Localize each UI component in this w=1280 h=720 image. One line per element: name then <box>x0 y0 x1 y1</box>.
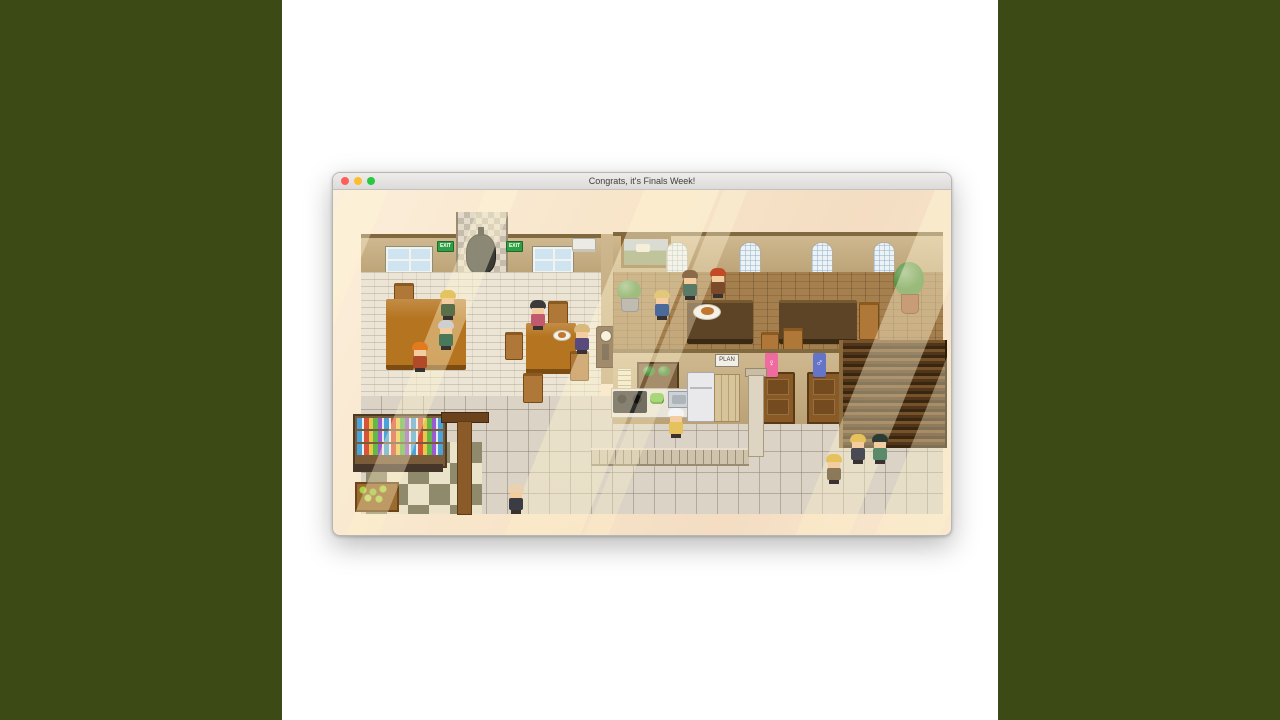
window-title: Congrats, it's Finals Week! <box>333 176 951 186</box>
window-titlebar[interactable]: Congrats, it's Finals Week! <box>333 173 951 190</box>
character-black-hair-girl <box>529 300 547 330</box>
character-elder-green <box>437 320 455 350</box>
video-frame: Congrats, it's Finals Week! EXIT EXIT <box>0 0 1280 720</box>
character-seated-blonde <box>573 324 591 354</box>
character-chef <box>667 408 685 438</box>
letterbox-right <box>998 0 1280 720</box>
character-walking-green-boy <box>871 434 889 464</box>
character-blonde-student-table1 <box>439 290 457 320</box>
letterbox-left <box>0 0 282 720</box>
game-window: Congrats, it's Finals Week! EXIT EXIT <box>332 172 952 536</box>
character-layer <box>333 190 951 535</box>
character-mohawk-server <box>709 268 727 298</box>
character-walking-girl <box>825 454 843 484</box>
character-blonde-patron <box>653 290 671 320</box>
character-green-jacket-server <box>681 270 699 300</box>
game-viewport[interactable]: EXIT EXIT <box>333 190 951 535</box>
character-orange-hair-student <box>411 342 429 372</box>
character-bald-student <box>507 484 525 514</box>
character-walking-blonde-boy <box>849 434 867 464</box>
